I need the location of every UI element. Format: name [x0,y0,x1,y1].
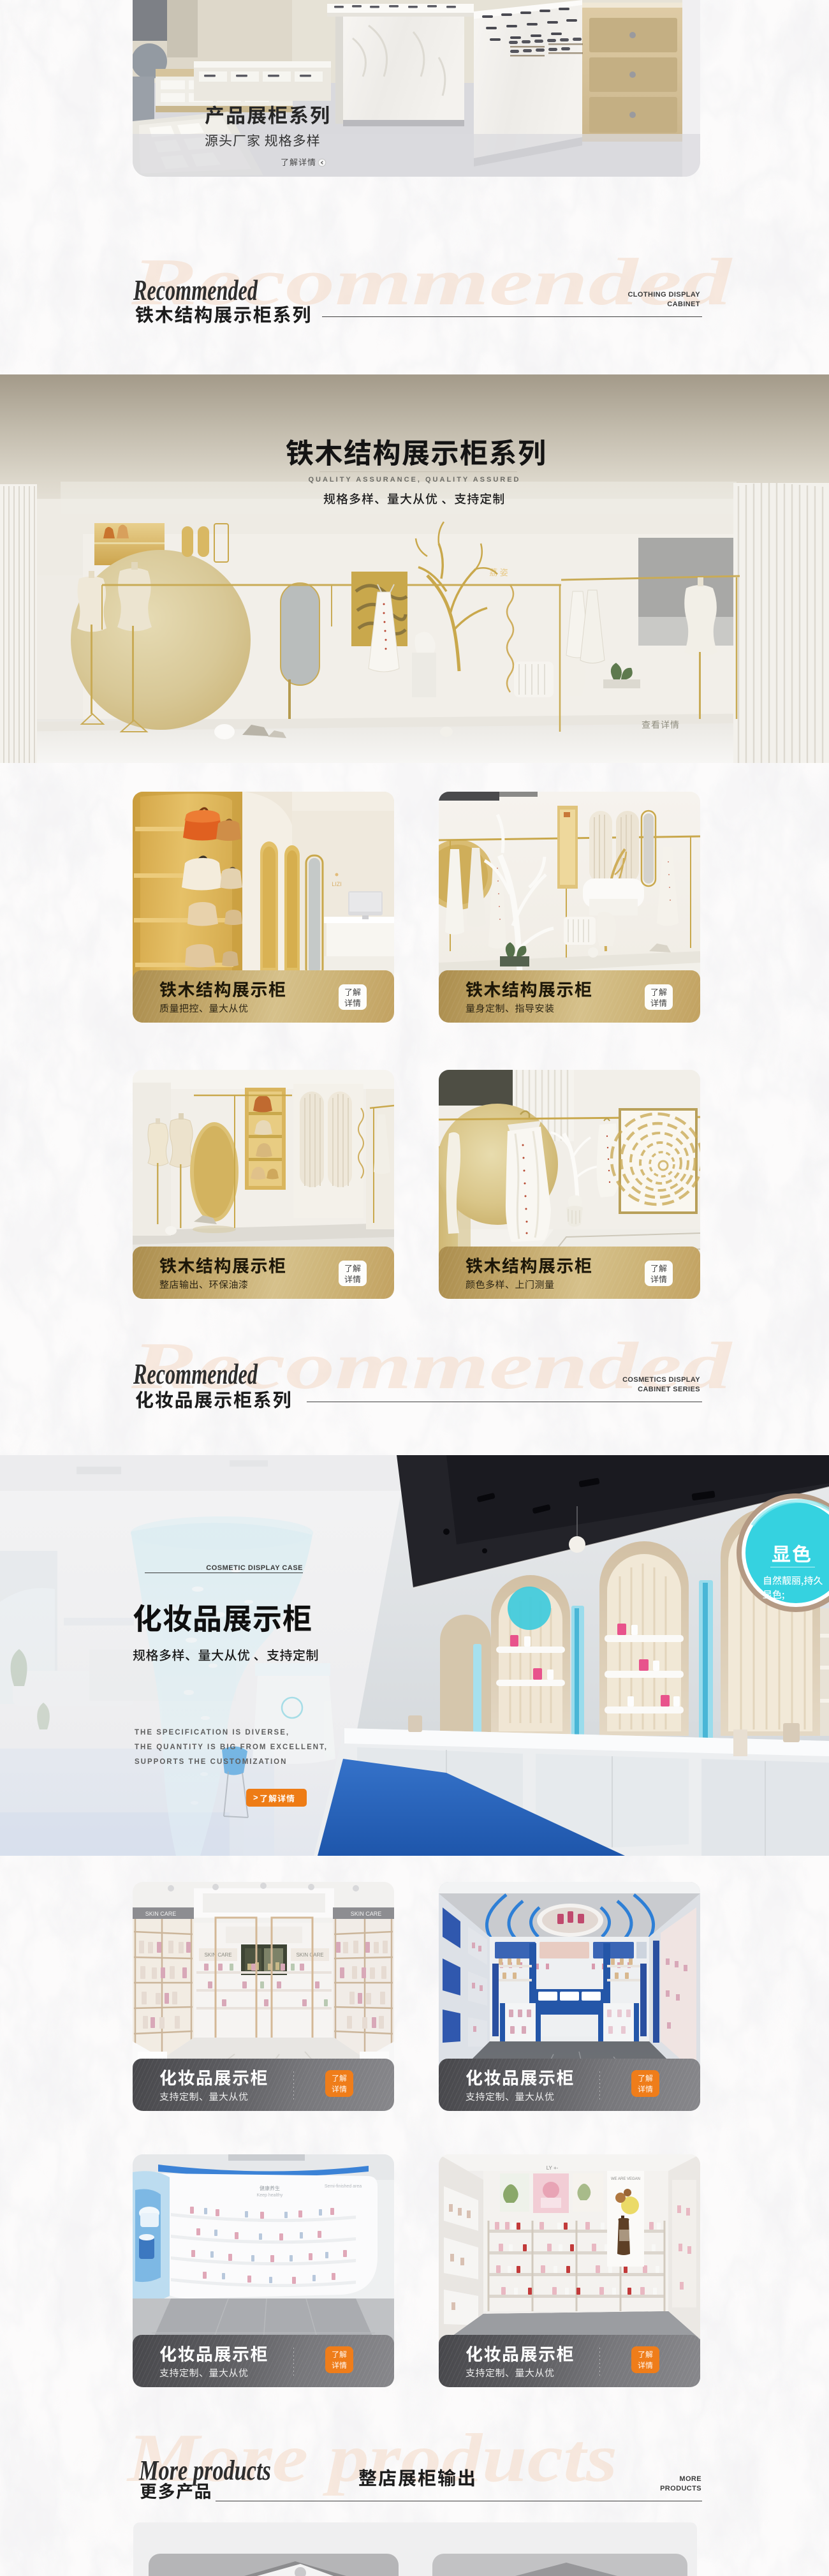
svg-text:SKIN CARE: SKIN CARE [204,1952,231,1958]
svg-text:荔 姿: 荔 姿 [489,568,508,577]
svg-text:SKIN CARE: SKIN CARE [296,1952,323,1958]
svg-text:SKIN CARE: SKIN CARE [145,1911,177,1917]
svg-text:SKIN CARE: SKIN CARE [351,1911,382,1917]
svg-text:WE ARE VEGAN: WE ARE VEGAN [611,2177,640,2181]
svg-text:LY +-: LY +- [547,2165,559,2171]
svg-text:LIZI: LIZI [332,881,342,887]
svg-text:健康养生: 健康养生 [260,2185,280,2191]
svg-text:Semi-finished area: Semi-finished area [325,2184,362,2189]
svg-text:Keep healthy: Keep healthy [257,2193,283,2198]
